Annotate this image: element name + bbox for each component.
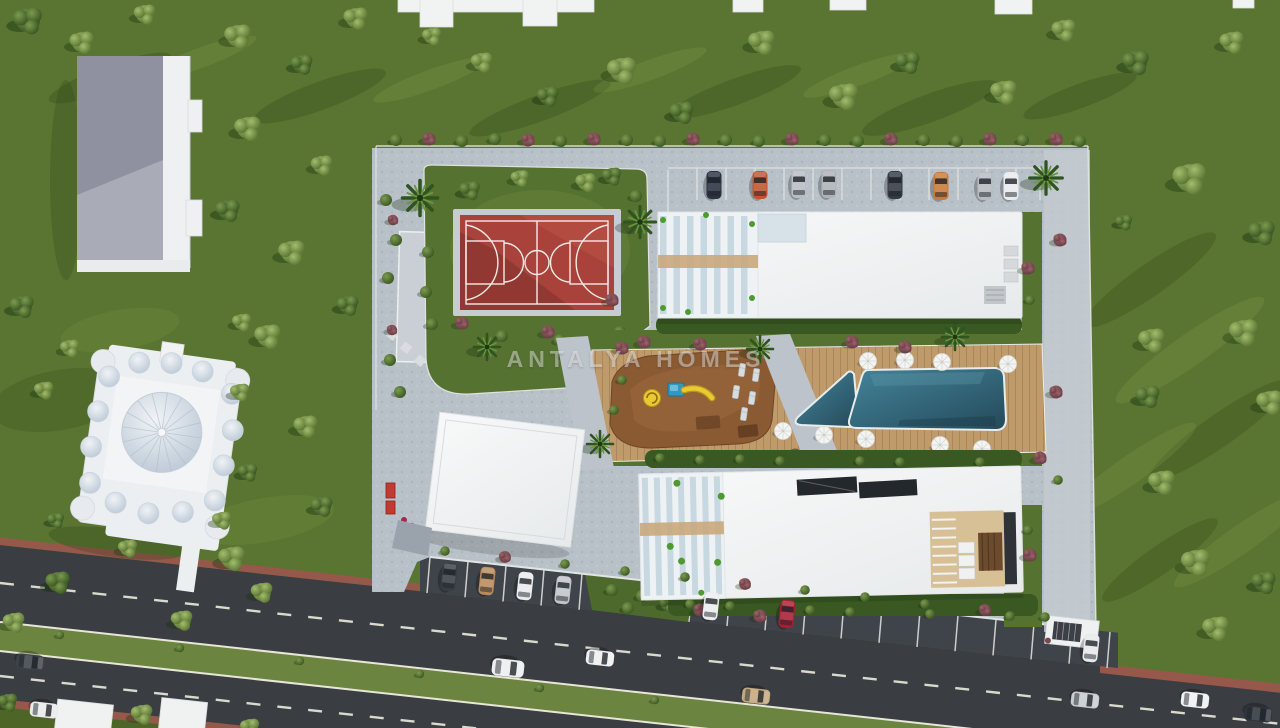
play-mat: [737, 424, 758, 438]
aerial-render-canvas: [0, 0, 1280, 728]
roof-skylight: [758, 214, 806, 242]
block-a-terraces: [658, 212, 758, 318]
neighboring-apartment-building: [50, 56, 202, 280]
social-facility-building: [413, 411, 584, 564]
residential-block-north: [658, 212, 1022, 324]
terrace-glass: [1004, 512, 1018, 584]
tree: [0, 694, 17, 712]
roof-glass-panel: [859, 479, 918, 498]
residential-block-south: [639, 466, 1024, 606]
roof-terrace: [930, 510, 1018, 588]
spiral-slide: [644, 390, 661, 407]
site-plan-render: ANTALYA HOMES: [0, 0, 1280, 728]
basketball-court: [453, 209, 621, 316]
play-mat: [696, 415, 721, 430]
